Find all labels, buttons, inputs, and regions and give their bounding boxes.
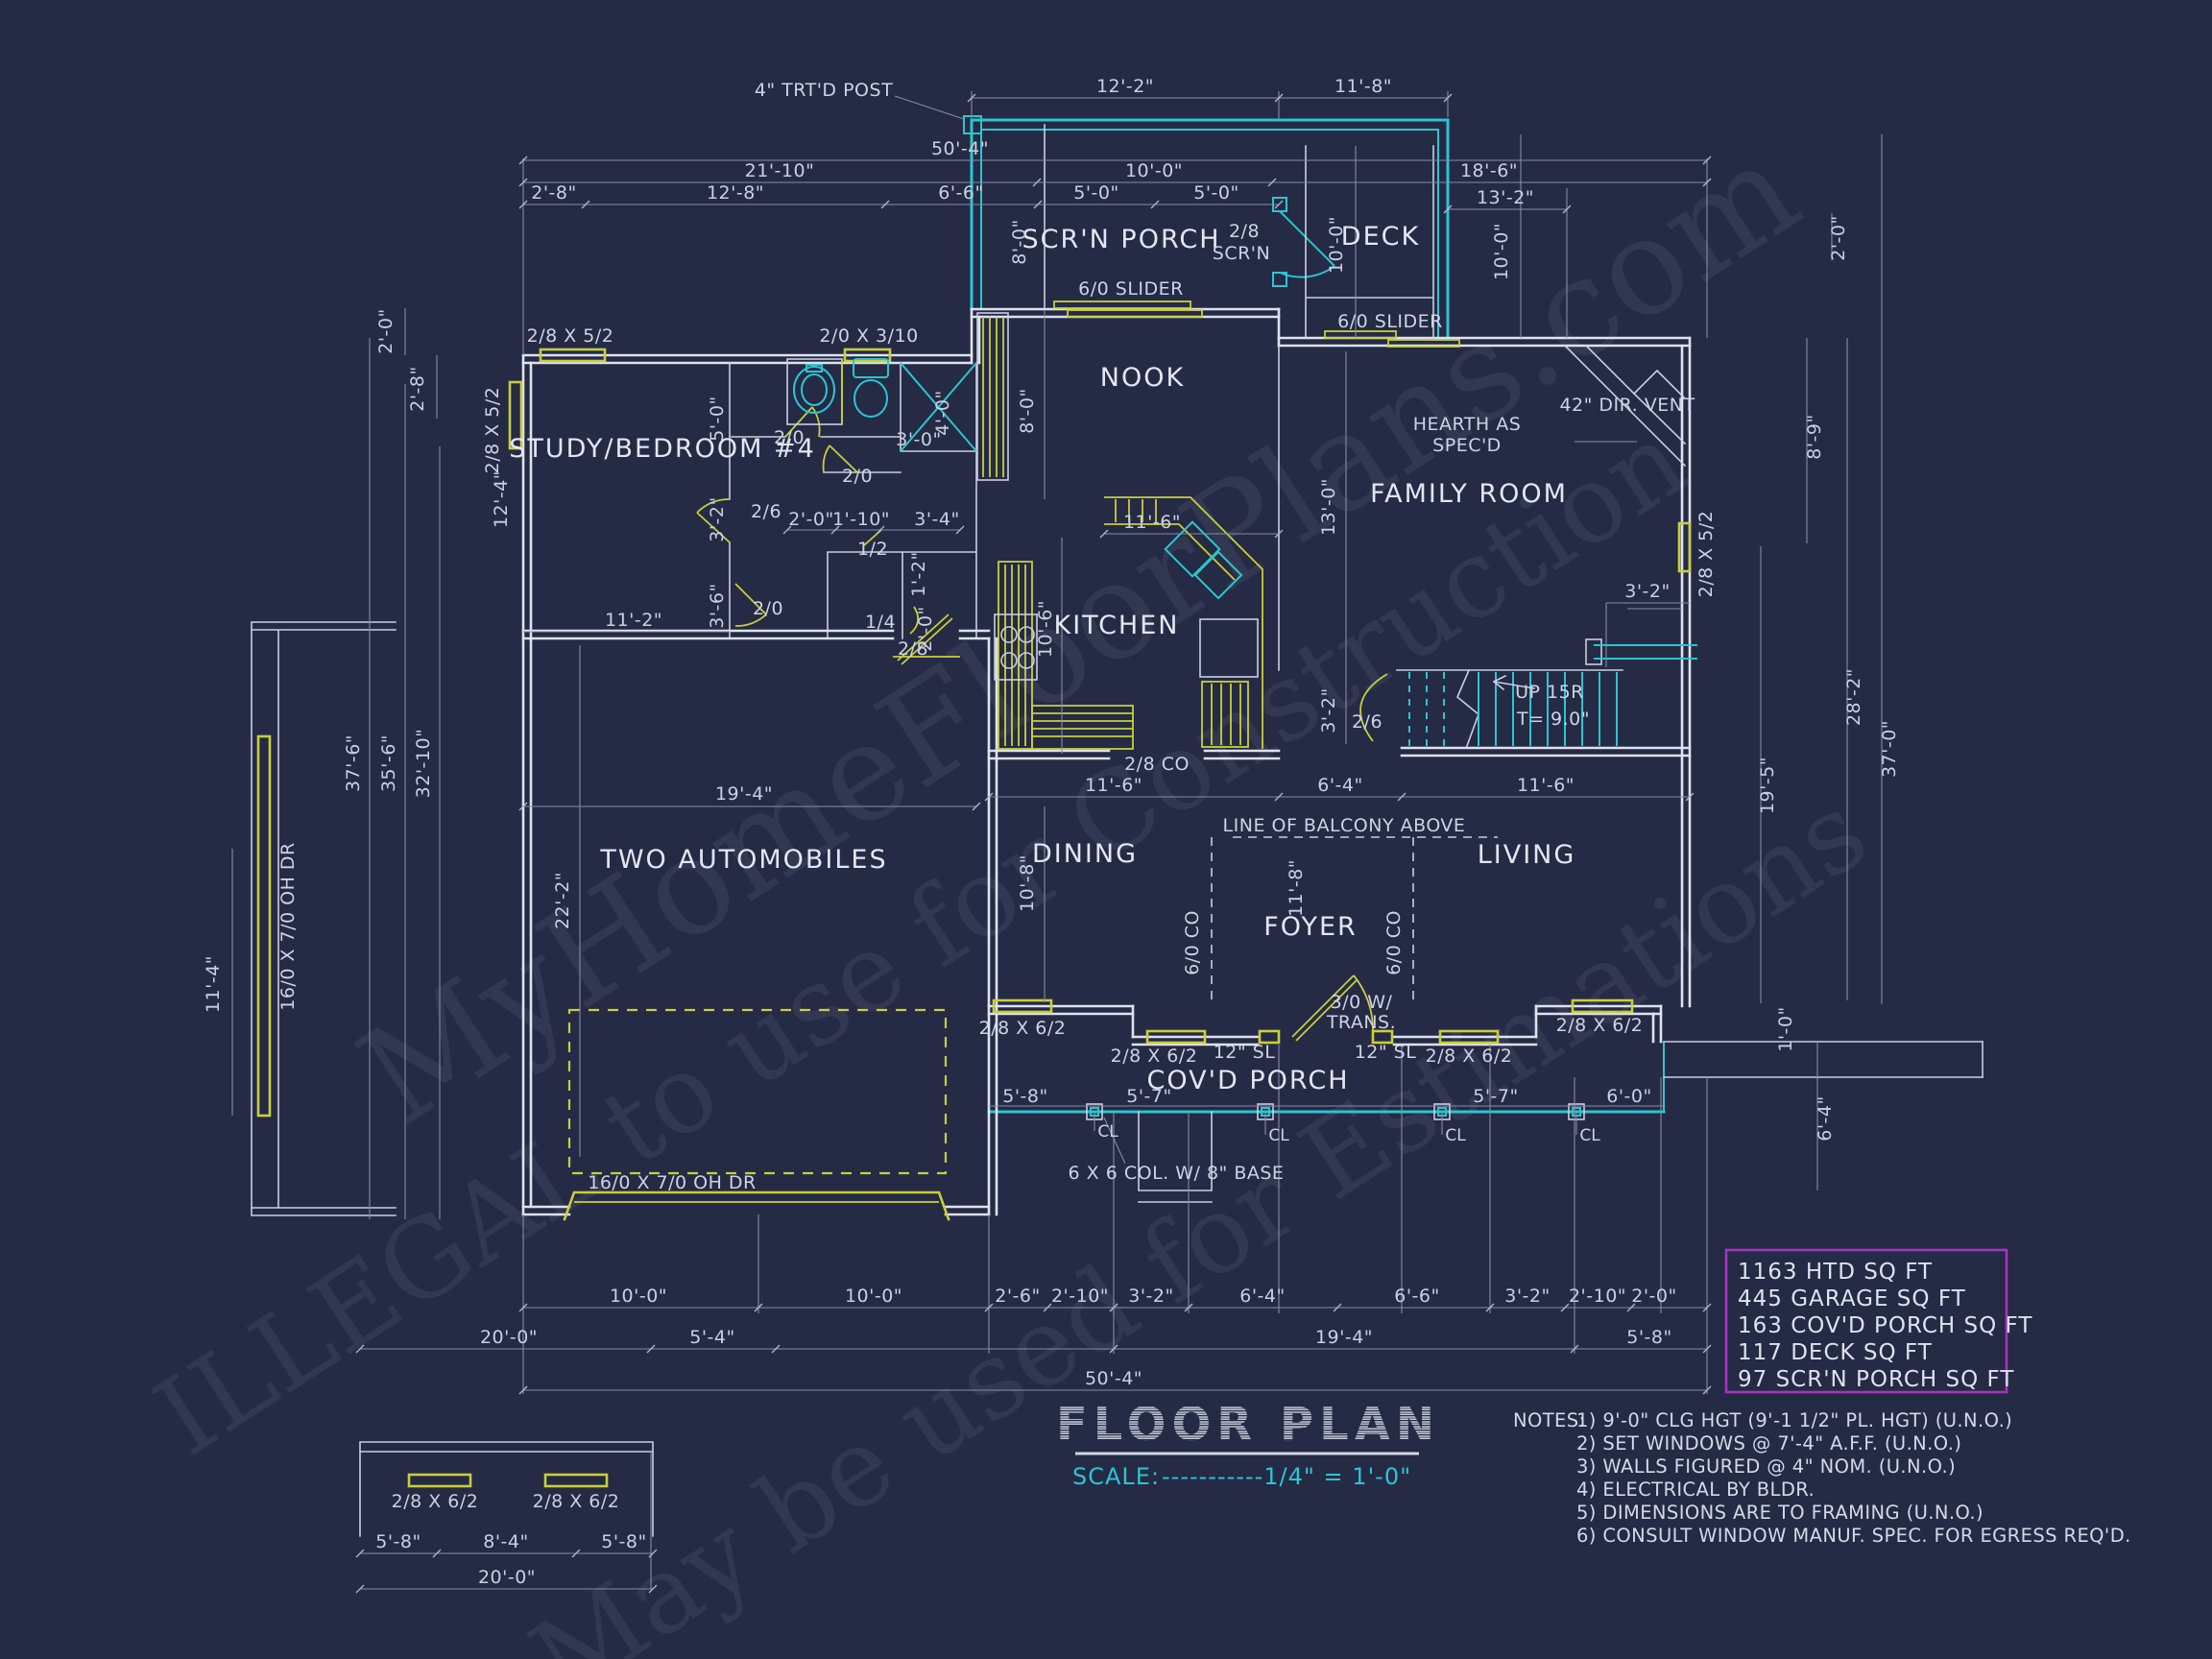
dim: 20'-0"	[478, 1567, 536, 1588]
dim: 19'-5"	[1757, 757, 1778, 814]
dim: 2'-0"	[375, 308, 397, 354]
room-label-scrn-porch: SCR'N PORCH	[1022, 225, 1220, 254]
label-column-base: 6 X 6 COL. W/ 8" BASE	[1069, 1163, 1285, 1184]
label-cl: CL	[1097, 1122, 1118, 1142]
label-window: 2/8 X 6/2	[1556, 1015, 1644, 1036]
dim: 28'-2"	[1843, 668, 1864, 726]
dim: 11'-6"	[1123, 512, 1181, 533]
dim: 37'-0"	[1879, 720, 1900, 778]
label-hearth: SPEC'D	[1432, 435, 1502, 456]
label-balcony-line: LINE OF BALCONY ABOVE	[1223, 815, 1466, 836]
dim: 11'-8"	[1334, 76, 1392, 97]
sqft-line: 117 DECK SQ FT	[1738, 1340, 1933, 1365]
dim: 3'-2"	[1504, 1286, 1551, 1307]
room-label-garage: TWO AUTOMOBILES	[599, 845, 887, 875]
dim: 8'-0"	[1009, 219, 1030, 265]
label-cl: CL	[1579, 1126, 1600, 1145]
label-scrn-door: 2/8	[1229, 221, 1260, 242]
dim: 11'-6"	[1085, 775, 1142, 796]
dim: 2'-0"	[788, 509, 834, 530]
room-label-deck: DECK	[1341, 222, 1420, 252]
dim: 5'-8"	[375, 1531, 421, 1552]
label-tread: T= 9.0"	[1516, 709, 1590, 730]
dim: 5'-8"	[1002, 1086, 1048, 1107]
dim: 8'-0"	[1017, 388, 1038, 434]
note-item: 4) ELECTRICAL BY BLDR.	[1576, 1479, 1815, 1501]
dim: 5'-8"	[601, 1531, 647, 1552]
dim: 10'-6"	[1035, 600, 1056, 658]
notes-block: NOTES: 1) 9'-0" CLG HGT (9'-1 1/2" PL. H…	[1513, 1409, 2131, 1547]
dim: 12'-8"	[707, 182, 764, 204]
dim: 2'-6"	[995, 1286, 1041, 1307]
room-label-living: LIVING	[1478, 840, 1576, 870]
dim: 13'-2"	[1477, 187, 1534, 208]
label-window: 2/8 X 6/2	[979, 1018, 1067, 1039]
label-sidelight: 12" SL	[1214, 1042, 1276, 1063]
sqft-line: 97 SCR'N PORCH SQ FT	[1738, 1367, 2014, 1392]
dim: 3'-2"	[1624, 581, 1671, 602]
dim: 19'-4"	[715, 783, 773, 805]
dim: 22'-2"	[552, 872, 573, 929]
dim: 6'-0"	[1606, 1086, 1652, 1107]
label-window: 2/8 X 5/2	[1695, 511, 1717, 598]
label-oh-door-side: 16/0 X 7/0 OH DR	[277, 842, 299, 1011]
dim: 19'-4"	[1315, 1327, 1373, 1348]
dim: 11'-2"	[605, 610, 662, 631]
label-slider-nook: 6/0 SLIDER	[1078, 278, 1184, 300]
label-window: 2/8 X 5/2	[482, 387, 503, 474]
dim: 5'-7"	[1473, 1086, 1519, 1107]
dim: 20'-0"	[480, 1327, 538, 1348]
label-dir-vent: 42" DIR. VENT	[1559, 395, 1695, 416]
dim: 3'-6"	[707, 583, 728, 629]
label-window: 2/8 X 5/2	[527, 325, 614, 347]
dim: 2/8 X 6/2	[392, 1491, 479, 1512]
scale-value: -----------1/4" = 1'-0"	[1162, 1463, 1411, 1490]
label-transom-door: TRANS.	[1326, 1012, 1396, 1033]
dim: 3'-2"	[707, 496, 728, 542]
dim: 8'-4"	[483, 1531, 529, 1552]
label-hearth: HEARTH AS	[1413, 414, 1522, 435]
dim: 50'-4"	[931, 138, 989, 159]
label-door: 2/6	[1352, 711, 1382, 733]
note-item: 1) 9'-0" CLG HGT (9'-1 1/2" PL. HGT) (U.…	[1576, 1409, 2012, 1431]
dim: 1'-10"	[832, 509, 890, 530]
sqft-line: 1163 HTD SQ FT	[1738, 1260, 1933, 1285]
label-scrn-door: SCR'N	[1213, 243, 1270, 264]
room-label-family: FAMILY ROOM	[1370, 479, 1568, 509]
dim: 6'-4"	[1317, 775, 1363, 796]
dim: 5'-4"	[689, 1327, 735, 1348]
label-door: 2/0	[753, 598, 783, 619]
room-label-dining: DINING	[1032, 839, 1138, 869]
drawing-title: FLOOR PLAN	[1056, 1398, 1440, 1452]
dim: 2'-8"	[407, 366, 428, 412]
dim: 2'-0"	[915, 606, 936, 652]
label-transom-door: 3/0 W/	[1331, 992, 1393, 1013]
label-co-living: 6/0 CO	[1383, 910, 1405, 975]
scale-label: SCALE:	[1072, 1463, 1160, 1490]
dim: 35'-6"	[378, 734, 399, 792]
room-label-foyer: FOYER	[1263, 912, 1358, 942]
dim: 6'-4"	[1239, 1286, 1286, 1307]
dim: 50'-4"	[1085, 1368, 1142, 1389]
dim: 5'-0"	[1193, 182, 1239, 204]
dim: 3'-4"	[914, 509, 960, 530]
label-door: 1/2	[857, 539, 888, 560]
room-label-covd-porch: COV'D PORCH	[1147, 1066, 1350, 1095]
room-label-nook: NOOK	[1100, 363, 1185, 393]
sqft-line: 163 COV'D PORCH SQ FT	[1738, 1313, 2032, 1338]
label-door: 2/0	[842, 466, 873, 487]
label-sidelight: 12" SL	[1355, 1042, 1417, 1063]
garage-door-side	[258, 736, 270, 1116]
dim: 8'-9"	[1804, 414, 1825, 460]
dim: 12'-4"	[491, 470, 512, 528]
label-up-stairs: UP 15R	[1515, 682, 1584, 703]
label-cl: CL	[1445, 1126, 1466, 1145]
dim: 18'-6"	[1460, 160, 1518, 181]
blueprint-canvas: MyHomeFloorPlans.com ILLEGAL to use for …	[0, 0, 2212, 1659]
dim: 2'-10"	[1569, 1286, 1626, 1307]
dim: 5'-0"	[707, 396, 728, 442]
dim: 5'-8"	[1626, 1327, 1672, 1348]
dim: 4'-0"	[932, 390, 953, 436]
dim: 2/8 X 6/2	[533, 1491, 620, 1512]
room-label-kitchen: KITCHEN	[1054, 611, 1180, 640]
toilet-bowl	[854, 380, 887, 417]
dim: 10'-0"	[1326, 216, 1347, 274]
label-window: 2/8 X 6/2	[1426, 1046, 1513, 1067]
dim: 10'-8"	[1017, 854, 1038, 912]
dim: 2'-0"	[1828, 215, 1849, 261]
dim: 10'-0"	[1491, 223, 1512, 280]
label-door: 2/0	[774, 427, 805, 448]
window-family-right	[1679, 523, 1690, 571]
label-trtd-post: 4" TRT'D POST	[755, 80, 893, 101]
label-oh-door: 16/0 X 7/0 OH DR	[588, 1172, 757, 1193]
dim: 6'-6"	[938, 182, 984, 204]
dim: 6'-6"	[1394, 1286, 1440, 1307]
dim: 11'-4"	[203, 955, 224, 1013]
label-co-dining: 6/0 CO	[1182, 910, 1203, 975]
label-co-kitchen: 2/8 CO	[1124, 754, 1190, 775]
dim: 5'-7"	[1126, 1086, 1172, 1107]
sqft-line: 445 GARAGE SQ FT	[1738, 1286, 1966, 1311]
note-item: 5) DIMENSIONS ARE TO FRAMING (U.N.O.)	[1576, 1502, 1984, 1524]
dim: 10'-0"	[845, 1286, 902, 1307]
dim: 3'-2"	[1318, 687, 1339, 733]
dim: 1'-2"	[908, 551, 929, 597]
dim: 2'-0"	[1631, 1286, 1677, 1307]
dim: 10'-0"	[610, 1286, 667, 1307]
dim: 5'-0"	[1073, 182, 1119, 204]
note-item: 6) CONSULT WINDOW MANUF. SPEC. FOR EGRES…	[1576, 1525, 2131, 1547]
dim: 1'-0"	[1775, 1006, 1796, 1052]
dim: 37'-6"	[343, 734, 364, 792]
dim: 11'-6"	[1517, 775, 1575, 796]
label-slider-family: 6/0 SLIDER	[1337, 311, 1443, 332]
label-door: 2/6	[751, 501, 781, 522]
label-door: 1/4	[865, 612, 896, 633]
floor-plan-drawing: MyHomeFloorPlans.com ILLEGAL to use for …	[0, 0, 2212, 1659]
dim: 3'-2"	[1128, 1286, 1174, 1307]
sqft-summary-box: 1163 HTD SQ FT 445 GARAGE SQ FT 163 COV'…	[1726, 1250, 2032, 1392]
dim: 32'-10"	[413, 729, 434, 799]
notes-heading: NOTES:	[1513, 1409, 1586, 1431]
title-block: FLOOR PLAN SCALE: -----------1/4" = 1'-0…	[1056, 1398, 1440, 1490]
dim: 21'-10"	[745, 160, 815, 181]
slider-nook	[1054, 301, 1190, 308]
label-window: 2/0 X 3/10	[819, 325, 918, 347]
dim: 11'-8"	[1286, 859, 1307, 917]
dim: 13'-0"	[1318, 478, 1339, 536]
label-cl: CL	[1268, 1126, 1289, 1145]
dim: 2'-8"	[531, 182, 577, 204]
note-item: 3) WALLS FIGURED @ 4" NOM. (U.N.O.)	[1576, 1455, 1956, 1478]
dim: 12'-2"	[1096, 76, 1154, 97]
room-label-study: STUDY/BEDROOM #4	[509, 434, 816, 464]
note-item: 2) SET WINDOWS @ 7'-4" A.F.F. (U.N.O.)	[1576, 1432, 1961, 1455]
dim: 10'-0"	[1125, 160, 1183, 181]
dim: 6'-4"	[1815, 1095, 1836, 1142]
dim: 2'-10"	[1051, 1286, 1109, 1307]
label-window: 2/8 X 6/2	[1111, 1046, 1198, 1067]
